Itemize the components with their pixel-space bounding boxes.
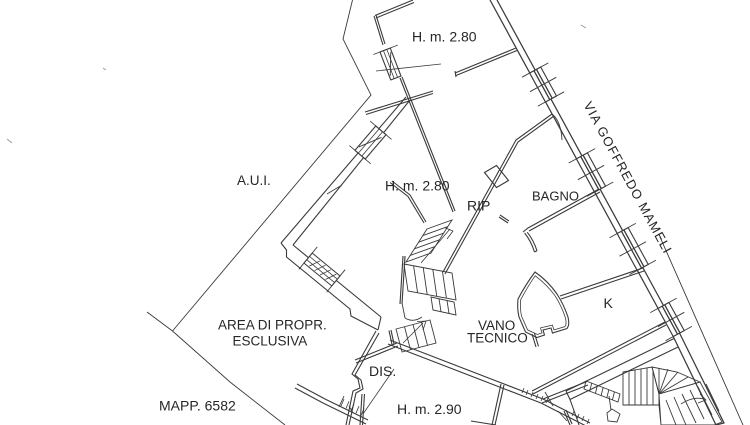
svg-text:BAGNO: BAGNO: [532, 189, 579, 204]
svg-text:H. m. 2.80: H. m. 2.80: [412, 29, 477, 45]
svg-text:A.U.I.: A.U.I.: [237, 173, 271, 188]
svg-text:K: K: [604, 295, 614, 311]
svg-text:DIS.: DIS.: [369, 363, 396, 379]
svg-text:ESCLUSIVA: ESCLUSIVA: [233, 334, 308, 349]
svg-text:H. m. 2.90: H. m. 2.90: [397, 401, 462, 417]
svg-text:RIP: RIP: [467, 198, 490, 214]
svg-text:MAPP. 6582: MAPP. 6582: [159, 398, 236, 414]
svg-text:H. m. 2.80: H. m. 2.80: [385, 178, 450, 194]
svg-text:AREA DI PROPR.: AREA DI PROPR.: [218, 318, 327, 333]
svg-text:TECNICO: TECNICO: [467, 331, 528, 346]
